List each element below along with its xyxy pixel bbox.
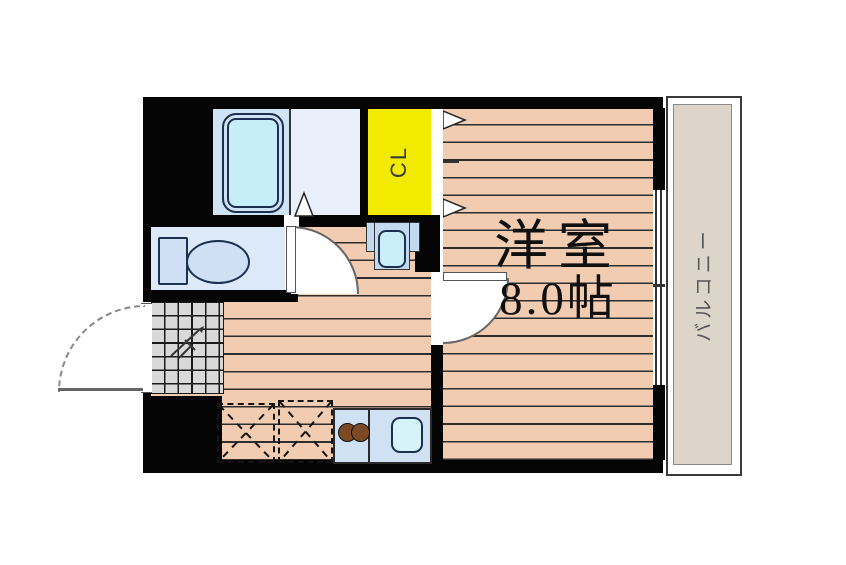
stove-burners-icon <box>351 423 370 442</box>
wall-right-upper <box>653 108 665 190</box>
room-label: 洋室 8.0帖 <box>452 218 664 325</box>
washbasin-icon <box>378 230 406 268</box>
entrance-mark-icon <box>165 320 217 366</box>
closet-door-triangles-icon <box>443 108 469 220</box>
wall-hall-room-lower <box>431 345 443 460</box>
bath-door-triangle-icon <box>293 191 317 217</box>
entrance-door-arc-icon <box>58 305 145 392</box>
appliance-space-box-icon <box>217 403 275 463</box>
toilet-tank <box>158 237 188 285</box>
balcony-label: バルコニー <box>666 96 738 472</box>
bathtub-icon <box>222 113 284 213</box>
closet-label: CL <box>368 108 431 215</box>
entrance-door-leaf <box>58 388 143 391</box>
toilet-icon <box>186 240 250 284</box>
wall-toilet-bottom <box>143 290 298 302</box>
wall-washroom-closet <box>360 108 368 215</box>
wall-topleft-mass <box>143 97 213 219</box>
room-door-opening <box>431 272 443 345</box>
floorplan: バルコニー <box>0 0 846 565</box>
appliance-space-box-icon <box>278 400 333 463</box>
kitchen-counter <box>333 408 432 464</box>
room-size: 8.0帖 <box>452 275 664 325</box>
wall-right-lower <box>653 385 665 460</box>
kitchen-sink-icon <box>391 417 423 453</box>
washroom-door-leaf <box>286 226 296 293</box>
closet-door-track <box>431 108 443 215</box>
room-name: 洋室 <box>452 218 664 275</box>
